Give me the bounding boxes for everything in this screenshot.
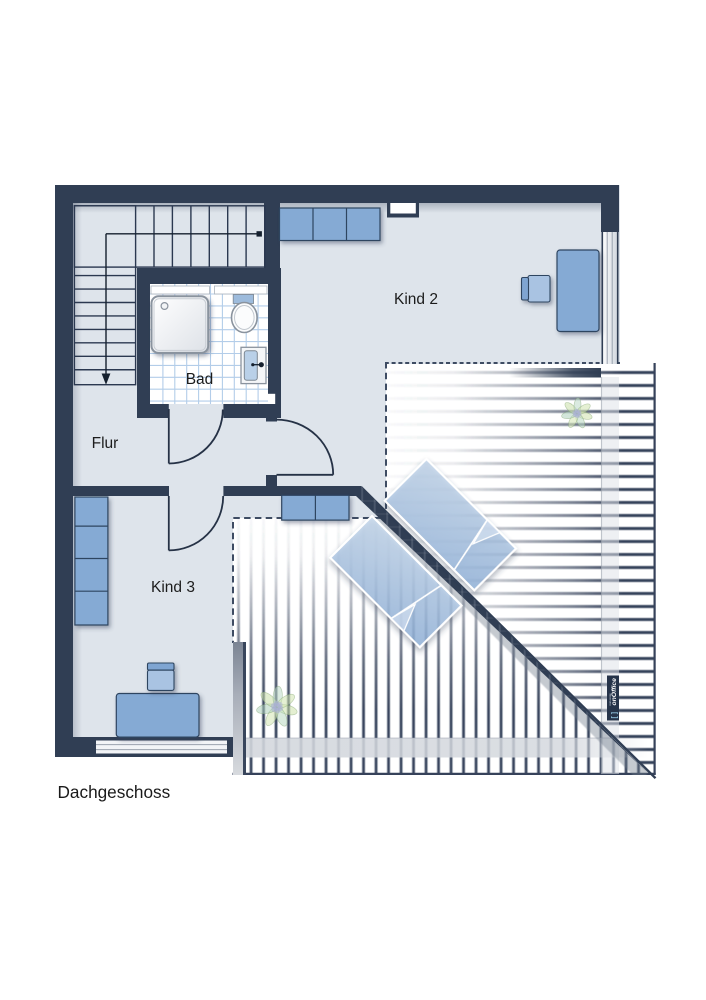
svg-text:onOffice: onOffice: [611, 678, 618, 706]
svg-text:Flur: Flur: [92, 435, 119, 452]
svg-text:Kind 2: Kind 2: [394, 291, 438, 308]
svg-text:Kind 3: Kind 3: [151, 579, 195, 596]
svg-text:real estate: real estate: [608, 693, 612, 706]
svg-text:[ ]: [ ]: [612, 712, 619, 719]
svg-text:Bad: Bad: [186, 371, 214, 388]
svg-text:Dachgeschoss: Dachgeschoss: [58, 782, 171, 802]
